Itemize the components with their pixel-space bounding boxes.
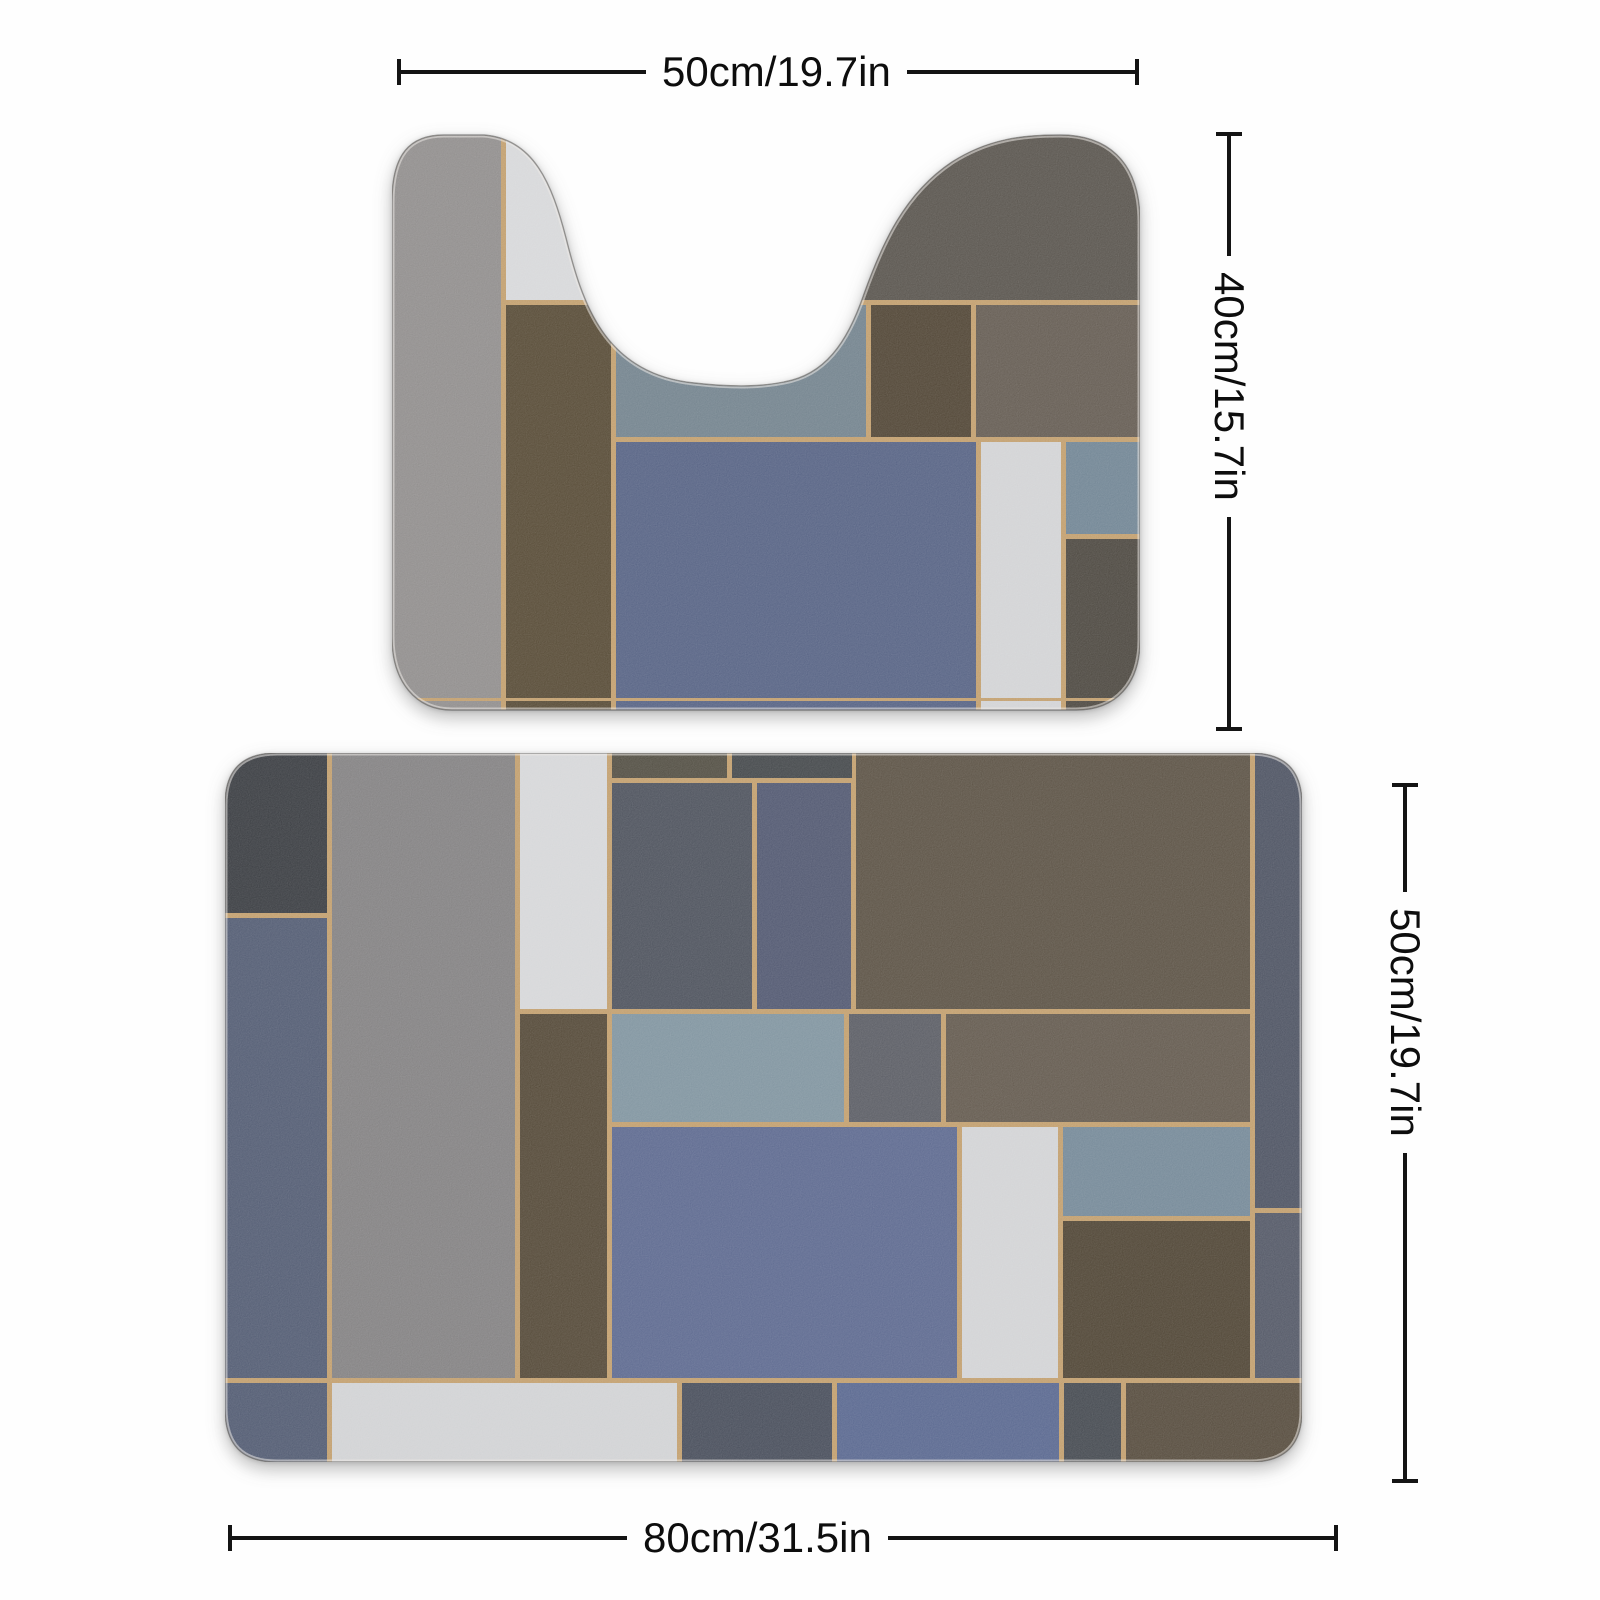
dimension-label: 80cm/31.5in	[627, 1517, 888, 1559]
contour-mat-graphic	[392, 132, 1140, 712]
dimension-line	[1227, 517, 1231, 727]
dimension-label: 40cm/15.7in	[1208, 256, 1250, 517]
dimension-line	[888, 1536, 1334, 1540]
product-dimension-image: 50cm/19.7in 40cm/15.7in 50cm/19.7in 80cm…	[0, 0, 1600, 1600]
dimension-tick	[1216, 727, 1242, 731]
dimension-tick	[1334, 1525, 1338, 1551]
dimension-line	[401, 70, 646, 74]
dimension-tick	[1392, 1479, 1418, 1483]
dimension-line	[1403, 787, 1407, 892]
dimension-line	[907, 70, 1135, 74]
dimension-tick	[1135, 59, 1139, 85]
dimension-top-width: 50cm/19.7in	[397, 59, 1139, 85]
dimension-line	[1403, 1153, 1407, 1479]
bath-mat-graphic	[225, 753, 1302, 1462]
dimension-bottom-width: 80cm/31.5in	[228, 1525, 1338, 1551]
dimension-mat-height: 50cm/19.7in	[1392, 783, 1418, 1483]
dimension-line	[1227, 136, 1231, 256]
dimension-contour-height: 40cm/15.7in	[1216, 132, 1242, 731]
dimension-line	[232, 1536, 627, 1540]
dimension-label: 50cm/19.7in	[646, 51, 907, 93]
dimension-label: 50cm/19.7in	[1384, 892, 1426, 1153]
